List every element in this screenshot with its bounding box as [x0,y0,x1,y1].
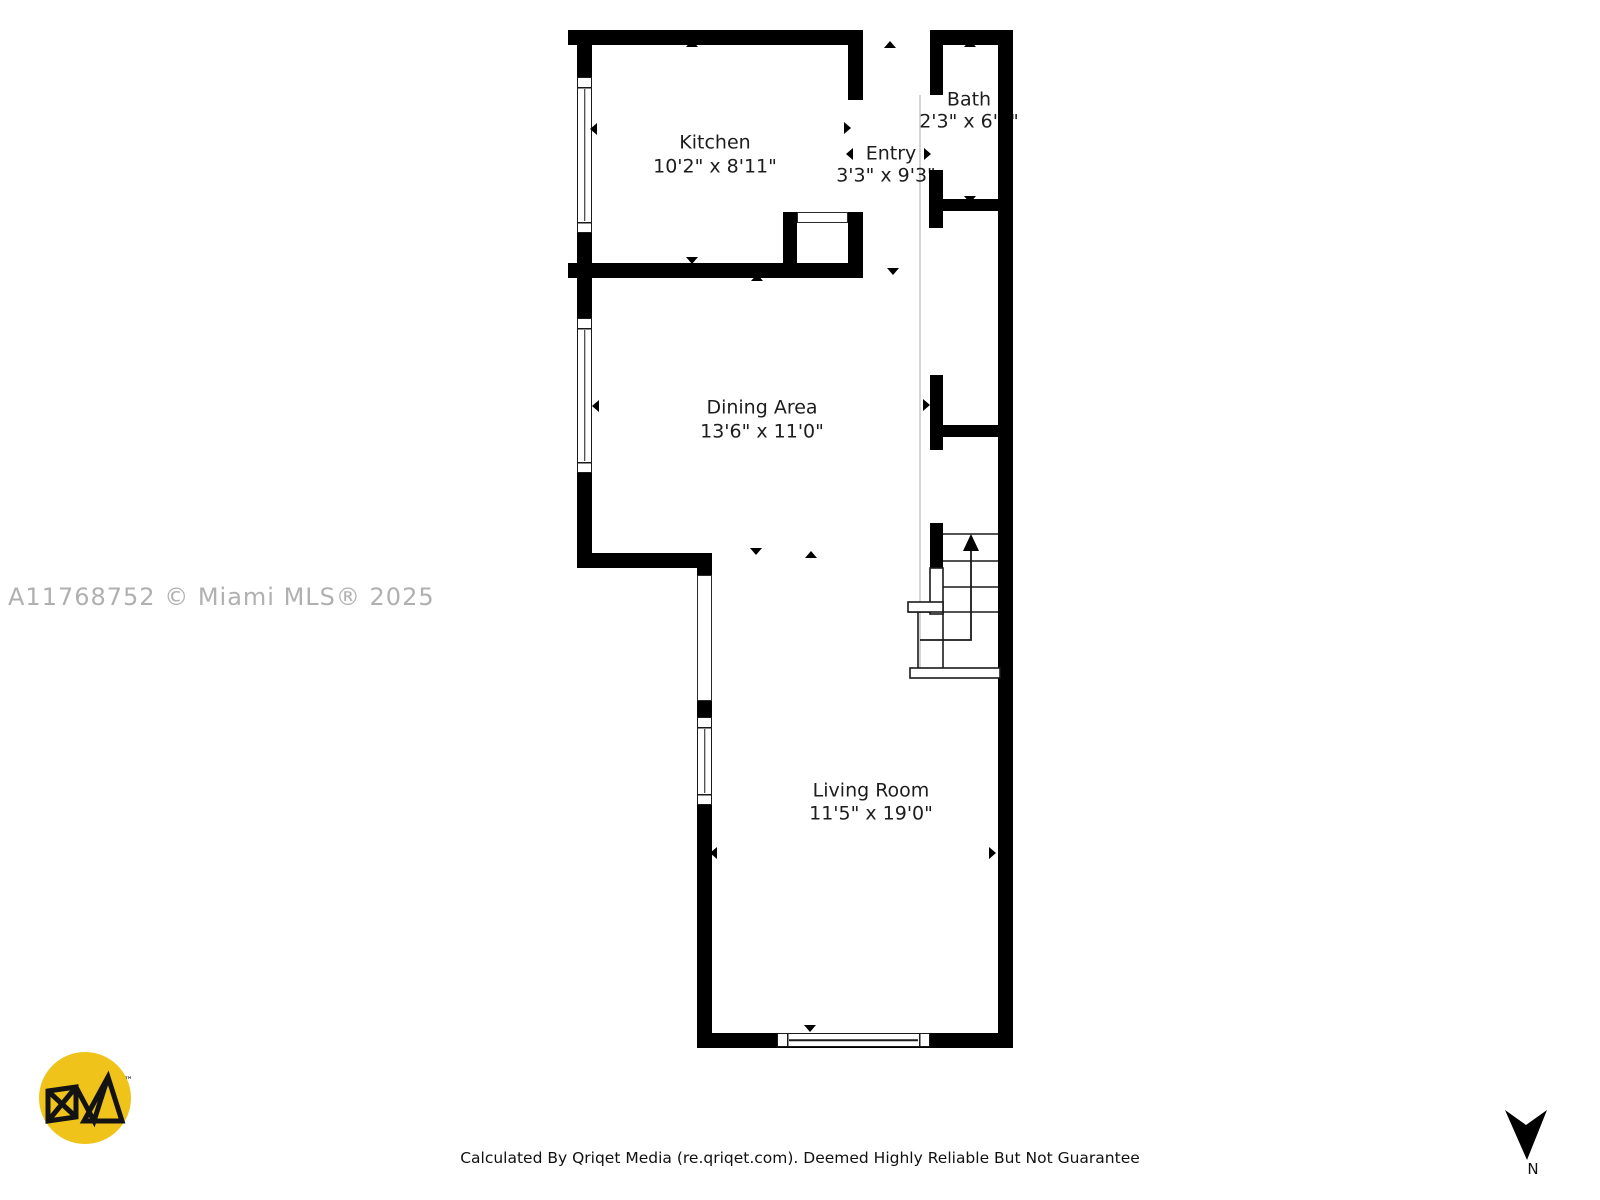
marker-up-icon [751,274,763,281]
marker-left-icon [710,847,717,859]
logo-trademark: ™ [124,1076,132,1086]
marker-up-icon [686,40,698,47]
window-living-left [697,717,712,805]
room-dims-kitchen: 10'2" x 8'11" [653,157,777,178]
marker-up-icon [884,41,896,48]
wall-bath-bottom-stub [929,170,943,228]
stairs-direction-line [920,550,971,640]
wall-bath-left [930,30,943,95]
stair-railing-horizontal [908,602,943,612]
room-label-entry: Entry [866,144,917,165]
marker-up-icon [805,551,817,558]
window-living-bottom [777,1033,930,1047]
room-label-living: Living Room [813,781,930,802]
wall-living-left [697,805,712,1048]
wall-alcove-left [783,212,797,263]
marker-left-icon [592,400,599,412]
wall-kitchen-right [848,30,863,100]
marker-up-icon [964,40,976,47]
opening-living-left [697,575,712,701]
marker-right-icon [989,847,996,859]
mls-watermark: A11768752 © Miami MLS® 2025 [8,583,435,611]
stair-landing [910,668,1000,678]
room-label-bath: Bath [947,90,991,111]
room-dims-living: 11'5" x 19'0" [809,804,933,825]
wall-living-left-stub [697,553,712,575]
room-dims-entry: 3'3" x 9'3" [836,166,936,187]
marker-down-icon [686,257,698,264]
marker-down-icon [750,548,762,555]
opening-alcove-top [797,212,848,223]
wall-left-upper [577,30,592,77]
wall-living-left-block [697,700,712,717]
window-kitchen-left [577,77,592,233]
wall-kitchen-top [568,30,863,45]
wall-kitchen-bottom [568,263,863,278]
wall-dining-bottom [577,553,712,568]
marker-right-icon [924,148,931,160]
north-arrow-icon [1505,1108,1549,1162]
marker-right-icon [844,122,851,134]
room-label-dining: Dining Area [706,398,817,419]
footer-disclaimer: Calculated By Qriqet Media (re.qriqet.co… [0,1149,1600,1167]
north-label: N [1518,1160,1548,1178]
marker-left-icon [590,123,597,135]
room-label-kitchen: Kitchen [679,133,750,154]
marker-left-icon [846,148,853,160]
room-dims-dining: 13'6" x 11'0" [700,422,824,443]
marker-right-icon [923,399,930,411]
stairs-up-arrow-icon [963,534,979,551]
staircase [900,520,1013,680]
qriqet-logo: ™ [38,1051,132,1145]
floorplan-canvas: A11768752 © Miami MLS® 2025 Calculated B… [0,0,1600,1200]
wall-alcove-right [848,212,863,263]
marker-down-icon [804,1025,816,1032]
window-dining-left [577,318,592,473]
marker-down-icon [887,268,899,275]
wall-hall-mid-stub [930,375,943,450]
wall-hall-mid [938,425,1013,437]
marker-down-icon [964,196,976,203]
